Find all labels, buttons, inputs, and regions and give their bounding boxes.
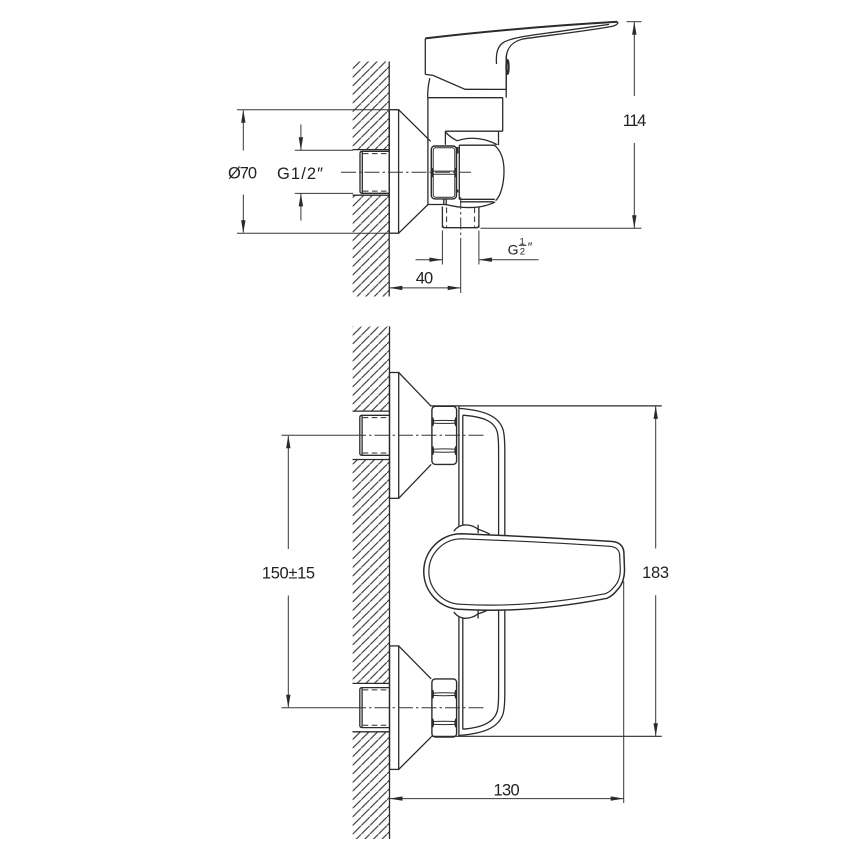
- svg-text:Ø70: Ø70: [228, 165, 257, 183]
- svg-text:2: 2: [520, 247, 525, 258]
- svg-text:″: ″: [528, 240, 533, 255]
- svg-text:G1/2″: G1/2″: [277, 165, 323, 183]
- svg-text:114: 114: [623, 112, 647, 130]
- svg-text:G: G: [508, 242, 519, 258]
- svg-text:40: 40: [416, 270, 434, 288]
- svg-text:183: 183: [642, 564, 669, 582]
- svg-text:150±15: 150±15: [262, 564, 315, 582]
- svg-text:130: 130: [494, 782, 520, 800]
